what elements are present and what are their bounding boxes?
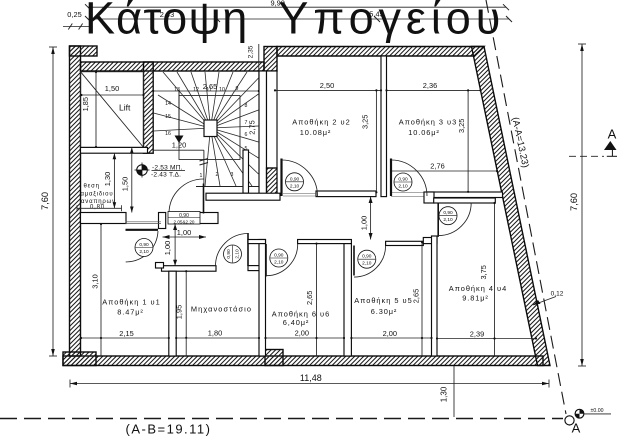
svg-text:Κάτοψη Υπογείου: Κάτοψη Υπογείου — [85, 0, 505, 44]
svg-text:0,90: 0,90 — [290, 176, 300, 182]
svg-text:6.30μ²: 6.30μ² — [371, 307, 398, 316]
svg-text:2,10: 2,10 — [274, 260, 284, 266]
svg-text:2,00: 2,00 — [383, 329, 397, 338]
svg-text:θεση: θεση — [84, 184, 100, 190]
svg-text:0,90: 0,90 — [139, 242, 149, 248]
svg-text:2,76: 2,76 — [430, 162, 444, 171]
svg-text:2,10: 2,10 — [139, 249, 149, 255]
svg-text:8.47μ²: 8.47μ² — [117, 308, 144, 317]
svg-text:2,65: 2,65 — [203, 82, 217, 91]
svg-text:15: 15 — [165, 114, 171, 120]
svg-text:12: 12 — [193, 87, 199, 93]
svg-text:0,90: 0,90 — [179, 213, 189, 219]
svg-text:αμαξιδιου: αμαξιδιου — [81, 191, 114, 197]
svg-text:3: 3 — [231, 172, 234, 178]
svg-text:1,50: 1,50 — [120, 177, 129, 191]
svg-text:7,60: 7,60 — [569, 193, 579, 211]
svg-text:0,12: 0,12 — [551, 291, 564, 298]
svg-text:10.08μ²: 10.08μ² — [300, 128, 332, 137]
svg-text:2,10: 2,10 — [398, 184, 408, 190]
svg-text:2,36: 2,36 — [423, 81, 437, 90]
svg-text:Α: Α — [608, 127, 617, 142]
svg-text:3,75: 3,75 — [479, 265, 488, 279]
svg-text:0,90: 0,90 — [274, 253, 284, 259]
svg-text:0,90: 0,90 — [443, 210, 453, 216]
svg-text:14: 14 — [165, 101, 171, 107]
svg-text:2.05&2.20: 2.05&2.20 — [174, 219, 195, 224]
svg-text:2,10: 2,10 — [235, 249, 241, 259]
svg-text:Αποθήκη 4 υ4: Αποθήκη 4 υ4 — [449, 284, 507, 293]
svg-text:2,00: 2,00 — [295, 329, 309, 338]
svg-text:0,90: 0,90 — [226, 249, 232, 259]
svg-text:3,10: 3,10 — [90, 274, 99, 288]
svg-text:11,48: 11,48 — [300, 373, 322, 383]
svg-text:2,35: 2,35 — [248, 45, 255, 58]
svg-text:Αποθήκη 1 υ1: Αποθήκη 1 υ1 — [102, 298, 160, 307]
svg-text:1,80: 1,80 — [208, 329, 222, 338]
svg-text:Lift: Lift — [119, 103, 131, 113]
svg-text:2,39: 2,39 — [470, 330, 484, 339]
svg-text:8: 8 — [245, 103, 248, 109]
svg-text:±0.00: ±0.00 — [591, 408, 604, 414]
svg-text:2,65: 2,65 — [412, 289, 421, 303]
svg-text:Μηχανοστάσιο: Μηχανοστάσιο — [191, 305, 252, 314]
svg-text:1,30: 1,30 — [103, 172, 112, 186]
svg-text:1,00: 1,00 — [360, 216, 369, 230]
svg-text:6,40μ²: 6,40μ² — [283, 318, 310, 327]
svg-text:2,10: 2,10 — [290, 183, 300, 189]
svg-text:Α: Α — [572, 421, 581, 436]
svg-text:1: 1 — [200, 173, 203, 179]
svg-text:(Α-Β=19.11): (Α-Β=19.11) — [126, 422, 212, 437]
svg-text:9.81μ²: 9.81μ² — [462, 294, 489, 303]
svg-text:(Α-Α=13.23): (Α-Α=13.23) — [509, 116, 530, 169]
svg-text:7,60: 7,60 — [40, 192, 50, 210]
svg-text:1,00: 1,00 — [163, 241, 172, 255]
svg-text:1,00: 1,00 — [177, 228, 191, 237]
svg-text:2,10: 2,10 — [362, 261, 372, 267]
svg-text:16: 16 — [165, 131, 171, 137]
svg-text:3,25: 3,25 — [360, 115, 369, 129]
svg-text:2,75: 2,75 — [248, 120, 257, 134]
svg-text:Αποθήκη 3 υ3: Αποθήκη 3 υ3 — [399, 118, 457, 127]
svg-text:0,90: 0,90 — [362, 254, 372, 260]
svg-text:Αποθήκη 5 υ5: Αποθήκη 5 υ5 — [354, 296, 412, 305]
svg-text:0,25: 0,25 — [67, 10, 81, 19]
svg-text:10: 10 — [219, 87, 225, 93]
svg-text:Αποθήκη 2 υ2: Αποθήκη 2 υ2 — [292, 118, 350, 127]
svg-text:13: 13 — [174, 87, 180, 93]
svg-text:1,30: 1,30 — [440, 386, 449, 402]
svg-text:10.06μ²: 10.06μ² — [408, 128, 440, 137]
svg-text:0,90: 0,90 — [398, 177, 408, 183]
svg-text:-2.43 Τ.Δ.: -2.43 Τ.Δ. — [151, 172, 181, 179]
svg-text:2: 2 — [216, 172, 219, 178]
svg-text:2,15: 2,15 — [119, 329, 133, 338]
svg-text:1,95: 1,95 — [175, 305, 184, 319]
svg-text:1,20: 1,20 — [172, 141, 186, 150]
svg-text:3,25: 3,25 — [457, 119, 466, 133]
svg-text:2,50: 2,50 — [320, 81, 334, 90]
svg-text:1,85: 1,85 — [81, 97, 90, 111]
svg-text:2,65: 2,65 — [305, 291, 314, 305]
svg-text:1,50: 1,50 — [105, 84, 119, 93]
svg-text:2,10: 2,10 — [443, 217, 453, 223]
svg-text:0,80: 0,80 — [90, 205, 105, 211]
